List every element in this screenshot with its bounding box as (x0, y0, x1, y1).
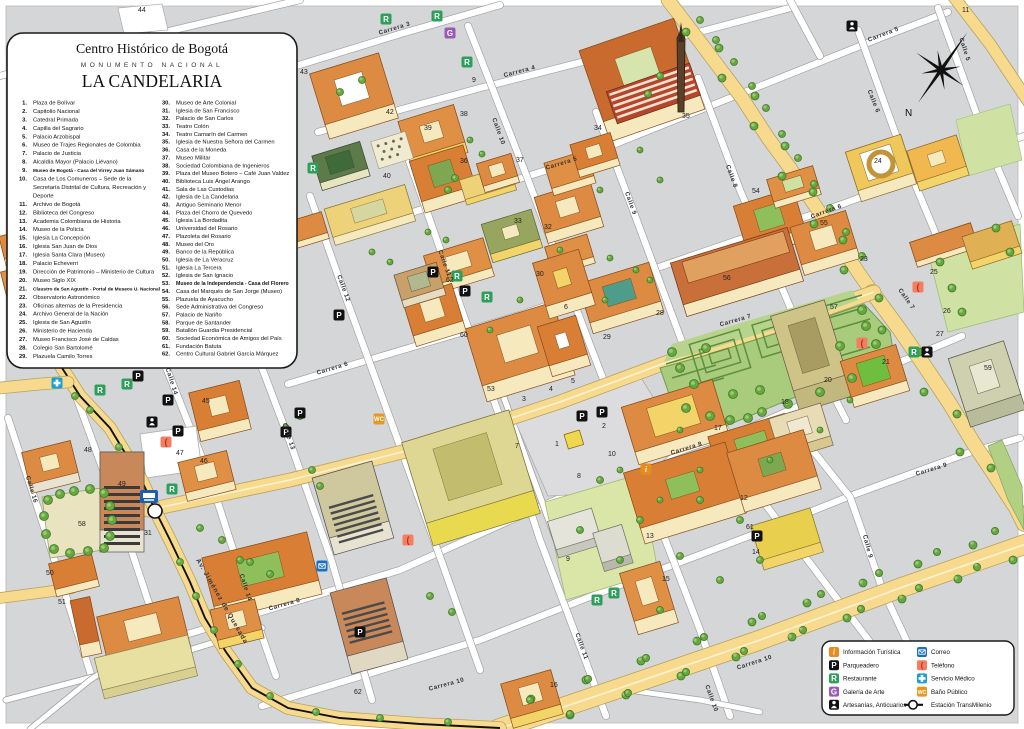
svg-text:R: R (831, 674, 837, 683)
svg-text:Iglesia de San Ignacio: Iglesia de San Ignacio (176, 273, 233, 279)
svg-text:37.: 37. (162, 155, 170, 161)
svg-text:LA CANDELARIA: LA CANDELARIA (82, 71, 223, 91)
svg-text:43: 43 (300, 69, 308, 76)
svg-text:(: ( (917, 282, 920, 292)
svg-text:61: 61 (746, 524, 754, 531)
svg-text:Plaza de Bolívar: Plaza de Bolívar (33, 101, 75, 107)
svg-text:Casa de Los Comuneros – Sede d: Casa de Los Comuneros – Sede de la (33, 177, 132, 183)
svg-text:Iglesia La Bordadita: Iglesia La Bordadita (176, 218, 228, 224)
svg-text:MONUMENTO NACIONAL: MONUMENTO NACIONAL (81, 62, 223, 69)
svg-text:3: 3 (522, 396, 526, 403)
svg-text:36.: 36. (162, 148, 170, 154)
svg-text:34.: 34. (162, 132, 170, 138)
svg-text:4: 4 (549, 386, 553, 393)
svg-text:19.: 19. (19, 270, 27, 276)
svg-text:Secretaría Distrital de Cultur: Secretaría Distrital de Cultura, Recreac… (33, 185, 146, 191)
svg-text:42: 42 (386, 109, 394, 116)
svg-text:P: P (430, 268, 436, 277)
svg-text:20.: 20. (19, 278, 27, 284)
svg-text:25.: 25. (19, 320, 27, 326)
svg-text:Museo de Bogotá - Casa del Vir: Museo de Bogotá - Casa del Virrey Juan S… (33, 168, 144, 174)
svg-text:(: ( (921, 661, 924, 670)
svg-text:59: 59 (984, 365, 992, 372)
svg-text:Biblioteca del Congreso: Biblioteca del Congreso (33, 210, 94, 216)
svg-text:N: N (905, 108, 912, 119)
svg-text:(: ( (861, 338, 864, 348)
svg-text:17: 17 (714, 425, 722, 432)
svg-text:57: 57 (830, 304, 838, 311)
svg-text:13.: 13. (19, 219, 27, 225)
svg-text:Dirección de Patrimonio – Mini: Dirección de Patrimonio – Ministerio de … (33, 270, 155, 276)
svg-text:44.: 44. (162, 210, 170, 216)
svg-text:10.: 10. (19, 177, 27, 183)
svg-text:P: P (754, 532, 760, 541)
svg-text:Museo Francisco José de Caldas: Museo Francisco José de Caldas (33, 337, 119, 343)
svg-text:R: R (484, 293, 490, 302)
svg-text:Biblioteca Luis Ángel Arango: Biblioteca Luis Ángel Arango (176, 178, 250, 185)
svg-text:Capitolio Nacional: Capitolio Nacional (33, 109, 80, 115)
svg-text:Servicio Médico: Servicio Médico (931, 676, 975, 683)
svg-text:Deporte: Deporte (33, 193, 54, 199)
svg-text:R: R (911, 348, 917, 357)
svg-text:20: 20 (824, 377, 832, 384)
svg-text:G: G (831, 687, 837, 696)
svg-text:Palacio de San Carlos: Palacio de San Carlos (176, 116, 233, 122)
svg-text:60.: 60. (162, 336, 170, 342)
svg-text:29: 29 (603, 334, 611, 341)
svg-text:P: P (462, 287, 468, 296)
svg-text:R: R (594, 596, 600, 605)
svg-text:62.: 62. (162, 352, 170, 358)
svg-text:WC: WC (918, 690, 927, 696)
svg-text:8.: 8. (22, 160, 27, 166)
svg-text:37: 37 (516, 157, 524, 164)
svg-text:R: R (611, 589, 617, 598)
svg-text:21.: 21. (19, 286, 27, 292)
svg-text:35.: 35. (162, 140, 170, 146)
svg-text:31: 31 (144, 530, 152, 537)
svg-text:2.: 2. (22, 109, 27, 115)
svg-text:Correo: Correo (931, 649, 950, 656)
svg-text:44: 44 (138, 7, 146, 14)
svg-text:57.: 57. (162, 313, 170, 319)
svg-text:24: 24 (874, 158, 882, 165)
svg-text:16: 16 (550, 682, 558, 689)
svg-text:18: 18 (781, 399, 789, 406)
svg-text:12.: 12. (19, 210, 27, 216)
svg-text:Casa del Marqués de San Jorge: Casa del Marqués de San Jorge (Museo) (176, 289, 282, 295)
svg-text:33.: 33. (162, 124, 170, 130)
svg-text:Colegio San Bartolomé: Colegio San Bartolomé (33, 346, 93, 352)
svg-text:P: P (175, 427, 181, 436)
svg-text:Centro Cultural Gabriel García: Centro Cultural Gabriel García Márquez (176, 352, 279, 358)
svg-text:46.: 46. (162, 226, 170, 232)
svg-text:50.: 50. (162, 258, 170, 264)
svg-text:13: 13 (646, 533, 654, 540)
svg-text:(: ( (407, 535, 410, 545)
svg-text:6: 6 (564, 304, 568, 311)
svg-text:R: R (383, 15, 389, 24)
svg-text:25: 25 (930, 269, 938, 276)
svg-text:Sociedad Económica de Amigos d: Sociedad Económica de Amigos del País (176, 336, 282, 342)
svg-text:61.: 61. (162, 344, 170, 350)
svg-text:Oficinas alternas de la Presid: Oficinas alternas de la Presidencia (33, 303, 123, 309)
svg-text:45: 45 (202, 398, 210, 405)
svg-text:Iglesia de San Agustín: Iglesia de San Agustín (33, 320, 91, 326)
svg-text:46: 46 (200, 458, 208, 465)
svg-text:43.: 43. (162, 203, 170, 209)
svg-text:55.: 55. (162, 297, 170, 303)
svg-text:3.: 3. (22, 117, 27, 123)
svg-text:30.: 30. (162, 101, 170, 107)
svg-text:35: 35 (682, 113, 690, 120)
svg-text:31.: 31. (162, 108, 170, 114)
svg-text:51: 51 (58, 599, 66, 606)
svg-text:Alcaldía Mayor (Palacio Liévan: Alcaldía Mayor (Palacio Liévano) (33, 160, 118, 166)
svg-text:33: 33 (514, 218, 522, 225)
svg-text:Museo de la Independencia - Ca: Museo de la Independencia - Casa del Flo… (176, 281, 289, 287)
svg-text:29.: 29. (19, 354, 27, 360)
svg-text:P: P (336, 311, 342, 320)
svg-text:34: 34 (594, 125, 602, 132)
svg-text:R: R (124, 380, 130, 389)
svg-text:Iglesia San Juan de Dios: Iglesia San Juan de Dios (33, 244, 97, 250)
svg-text:Palacio de Nariño: Palacio de Nariño (176, 313, 222, 319)
svg-text:56: 56 (723, 275, 731, 282)
svg-text:(: ( (165, 437, 168, 447)
svg-text:32: 32 (544, 224, 552, 231)
svg-text:Observatorio Astronómico: Observatorio Astronómico (33, 295, 100, 301)
svg-text:WC: WC (374, 417, 385, 423)
svg-text:Iglesia de Nuestra Señora del: Iglesia de Nuestra Señora del Carmen (176, 140, 275, 146)
svg-text:Artesanías, Anticuarios: Artesanías, Anticuarios (843, 702, 906, 709)
svg-text:21: 21 (882, 359, 890, 366)
svg-text:62: 62 (446, 277, 454, 284)
svg-text:9: 9 (472, 77, 476, 84)
svg-text:26.: 26. (19, 329, 27, 335)
svg-text:Iglesia de San Francisco: Iglesia de San Francisco (176, 108, 239, 114)
svg-text:P: P (831, 661, 837, 670)
svg-text:38: 38 (460, 111, 468, 118)
svg-text:60: 60 (460, 332, 468, 339)
svg-text:P: P (165, 396, 171, 405)
svg-text:P: P (579, 412, 585, 421)
svg-text:Sala de Las Custodias: Sala de Las Custodias (176, 187, 234, 193)
svg-text:62: 62 (354, 689, 362, 696)
svg-text:R: R (454, 272, 460, 281)
svg-text:Información Turística: Información Turística (843, 649, 901, 656)
svg-text:14.: 14. (19, 227, 27, 233)
svg-text:Iglesia La Tercera: Iglesia La Tercera (176, 265, 222, 271)
svg-text:11.: 11. (19, 202, 27, 208)
svg-text:Capilla del Sagrario: Capilla del Sagrario (33, 126, 84, 132)
svg-text:54: 54 (752, 188, 760, 195)
svg-text:Catedral Primada: Catedral Primada (33, 117, 79, 123)
svg-text:1.: 1. (22, 101, 27, 107)
svg-text:36: 36 (460, 158, 468, 165)
svg-text:24.: 24. (19, 312, 27, 318)
svg-text:Archivo de Bogotá: Archivo de Bogotá (33, 202, 81, 208)
svg-text:23.: 23. (19, 303, 27, 309)
svg-text:Baño Público: Baño Público (931, 689, 968, 696)
svg-text:38.: 38. (162, 163, 170, 169)
svg-text:Ministerio de Hacienda: Ministerio de Hacienda (33, 329, 93, 335)
svg-text:Casa de la Moneda: Casa de la Moneda (176, 148, 227, 154)
svg-text:32.: 32. (162, 116, 170, 122)
svg-text:58.: 58. (162, 320, 170, 326)
svg-text:58: 58 (78, 521, 86, 528)
svg-text:Banco de la República: Banco de la República (176, 250, 235, 256)
svg-text:15: 15 (662, 576, 670, 583)
svg-text:39.: 39. (162, 171, 170, 177)
svg-text:Teléfono: Teléfono (931, 662, 955, 669)
svg-text:4.: 4. (22, 126, 27, 132)
svg-text:6.: 6. (22, 143, 27, 149)
svg-text:7: 7 (515, 443, 519, 450)
svg-text:R: R (310, 164, 316, 173)
svg-text:27: 27 (936, 331, 944, 338)
svg-text:Iglesia de La Candelaria: Iglesia de La Candelaria (176, 195, 239, 201)
svg-text:P: P (599, 408, 605, 417)
svg-text:Sociedad Colombiana de Ingenie: Sociedad Colombiana de Ingenieros (176, 163, 270, 169)
svg-text:Claustro de San Agustín - Port: Claustro de San Agustín - Portal de Muse… (33, 286, 160, 292)
svg-text:Museo de la Policía: Museo de la Policía (33, 227, 84, 233)
svg-text:Palacio Echeverri: Palacio Echeverri (33, 261, 78, 267)
svg-text:16.: 16. (19, 244, 27, 250)
svg-text:P: P (135, 372, 141, 381)
svg-text:Fundación Batuta: Fundación Batuta (176, 344, 222, 350)
svg-text:Galería de Arte: Galería de Arte (843, 689, 885, 696)
svg-text:15.: 15. (19, 236, 27, 242)
svg-text:Museo Siglo XIX: Museo Siglo XIX (33, 278, 76, 284)
svg-text:P: P (357, 628, 363, 637)
svg-text:54.: 54. (162, 289, 170, 295)
svg-text:Plazuela de Ayacucho: Plazuela de Ayacucho (176, 297, 233, 303)
svg-text:26: 26 (943, 308, 951, 315)
svg-text:Antiguo Seminario Menor: Antiguo Seminario Menor (176, 203, 241, 209)
svg-text:40.: 40. (162, 179, 170, 185)
svg-text:Museo de Trajes Regionales de: Museo de Trajes Regionales de Colombia (33, 143, 141, 149)
svg-text:28: 28 (656, 310, 664, 317)
svg-text:49.: 49. (162, 250, 170, 256)
svg-text:28.: 28. (19, 346, 27, 352)
svg-text:18.: 18. (19, 261, 27, 267)
svg-text:Iglesia Santa Clara (Museo): Iglesia Santa Clara (Museo) (33, 253, 105, 259)
svg-text:48.: 48. (162, 242, 170, 248)
svg-text:12: 12 (740, 495, 748, 502)
svg-text:Parque de Santander: Parque de Santander (176, 320, 231, 326)
svg-text:R: R (434, 12, 440, 21)
svg-text:17.: 17. (19, 253, 27, 259)
svg-text:50: 50 (46, 570, 54, 577)
svg-text:10: 10 (608, 451, 616, 458)
svg-text:R: R (97, 386, 103, 395)
svg-text:23: 23 (860, 256, 868, 263)
svg-text:Teatro Camarín del Carmen: Teatro Camarín del Carmen (176, 132, 248, 138)
svg-text:Museo Militar: Museo Militar (176, 155, 211, 161)
svg-text:53.: 53. (162, 281, 170, 287)
svg-text:40: 40 (383, 173, 391, 180)
svg-text:R: R (464, 58, 470, 67)
svg-text:47.: 47. (162, 234, 170, 240)
svg-text:R: R (169, 485, 175, 494)
svg-text:Centro Histórico de Bogotá: Centro Histórico de Bogotá (76, 41, 228, 56)
svg-text:9.: 9. (22, 168, 27, 174)
svg-text:49: 49 (118, 481, 126, 488)
svg-text:Plaza del Chorro de Quevedo: Plaza del Chorro de Quevedo (176, 210, 252, 216)
svg-text:22.: 22. (19, 295, 27, 301)
svg-text:14: 14 (752, 549, 760, 556)
svg-text:Universidad del Rosario: Universidad del Rosario (176, 226, 238, 232)
svg-text:9: 9 (566, 556, 570, 563)
svg-text:48: 48 (84, 447, 92, 454)
svg-text:53: 53 (487, 386, 495, 393)
svg-text:56.: 56. (162, 305, 170, 311)
svg-text:5: 5 (571, 378, 575, 385)
svg-text:45.: 45. (162, 218, 170, 224)
svg-text:Estación TransMilenio: Estación TransMilenio (931, 702, 992, 709)
svg-text:Iglesia La Concepción: Iglesia La Concepción (33, 236, 90, 242)
svg-text:Sede Administrativa del Congre: Sede Administrativa del Congreso (176, 305, 263, 311)
svg-text:2: 2 (602, 423, 606, 430)
svg-text:8: 8 (577, 473, 581, 480)
svg-text:47: 47 (176, 450, 184, 457)
svg-text:41.: 41. (162, 187, 170, 193)
svg-text:Restaurante: Restaurante (843, 676, 877, 683)
svg-text:Museo del Oro: Museo del Oro (176, 242, 214, 248)
svg-text:52.: 52. (162, 273, 170, 279)
svg-text:11: 11 (962, 7, 969, 14)
svg-text:27.: 27. (19, 337, 27, 343)
svg-text:Teatro Colón: Teatro Colón (176, 124, 209, 130)
svg-text:39: 39 (424, 125, 432, 132)
svg-text:7.: 7. (22, 151, 27, 157)
svg-text:Academia Colombiana de Histori: Academia Colombiana de Historia (33, 219, 121, 225)
svg-text:Plazoleta del Rosario: Plazoleta del Rosario (176, 234, 231, 240)
svg-text:Plaza del Museo Botero – Café: Plaza del Museo Botero – Café Juan Valde… (176, 171, 289, 177)
svg-text:55: 55 (820, 220, 828, 227)
svg-text:Museo de Arte Colonial: Museo de Arte Colonial (176, 101, 236, 107)
svg-text:59.: 59. (162, 328, 170, 334)
svg-text:Palacio de Justicia: Palacio de Justicia (33, 151, 82, 157)
svg-text:G: G (447, 29, 453, 38)
svg-text:1: 1 (555, 441, 559, 448)
svg-text:5.: 5. (22, 134, 27, 140)
svg-text:Plazuela Camilo Torres: Plazuela Camilo Torres (33, 354, 93, 360)
svg-text:30: 30 (536, 271, 544, 278)
svg-text:Parqueadero: Parqueadero (843, 662, 879, 669)
svg-text:Batallón Guardia Presidencial: Batallón Guardia Presidencial (176, 328, 252, 334)
svg-text:Palacio Arzobispal: Palacio Arzobispal (33, 134, 80, 140)
svg-text:P: P (297, 409, 303, 418)
svg-text:42.: 42. (162, 195, 170, 201)
svg-text:51.: 51. (162, 265, 170, 271)
svg-text:Iglesia de La Veracruz: Iglesia de La Veracruz (176, 258, 233, 264)
svg-text:Archivo General de la Nación: Archivo General de la Nación (33, 312, 108, 318)
